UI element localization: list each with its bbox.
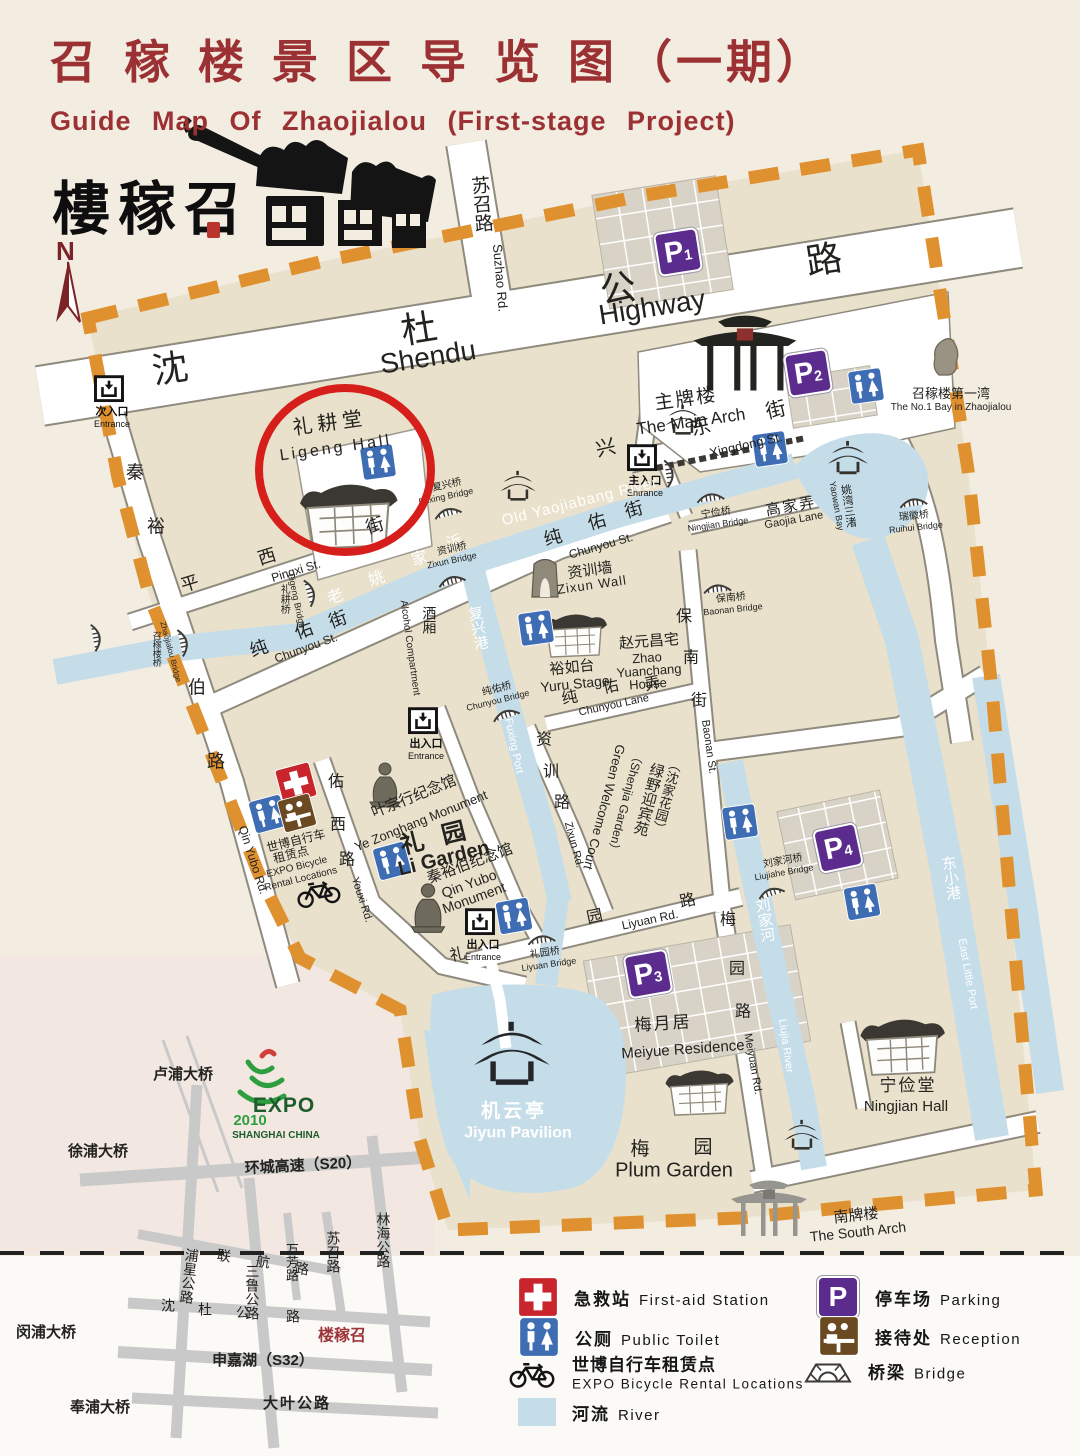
map-label: Meiyue Residence <box>621 1038 745 1062</box>
poi-label-jiyun-en: Jiyun Pavilion <box>464 1126 572 1143</box>
poi-label-no1-bay: 召稼楼第一湾 <box>912 387 990 401</box>
map-label: 梅 <box>720 913 736 930</box>
map-label: 南 <box>683 651 699 668</box>
map-label: 姚 <box>367 570 387 591</box>
bridge-icon <box>662 457 681 489</box>
map-label: 伯 <box>188 679 206 698</box>
map-label: Baonan St. <box>698 719 717 775</box>
map-label: 街 <box>623 498 646 521</box>
toilet-icon <box>721 803 759 841</box>
map-label: 裕 <box>147 518 165 537</box>
bridge-label: 礼耕桥 <box>278 584 289 614</box>
map-label: 纯 <box>247 637 270 661</box>
expo-logo-text: 2010 <box>233 1113 266 1129</box>
bridge-label: Baonan Bridge <box>703 602 763 618</box>
entrance-label: 出入口 <box>465 936 501 952</box>
entrance-icon: 次入口Entrance <box>94 375 130 429</box>
bridge-label: Ningjian Bridge <box>687 516 749 534</box>
inset-label: 公 <box>236 1306 250 1321</box>
map-label: 资 <box>536 733 552 750</box>
entrance-label: 出入口 <box>408 735 444 751</box>
bridge-icon <box>176 626 197 658</box>
map-label: 园 <box>693 1138 712 1158</box>
river-label: Liujia River <box>775 1018 794 1073</box>
bridge-icon <box>302 576 324 609</box>
map-label: 西 <box>330 818 346 835</box>
legend-item-parking: P停车场Parking <box>817 1276 1001 1318</box>
entrance-label: 次入口 <box>94 403 130 419</box>
parking-legend-icon: P <box>817 1276 859 1318</box>
bridge-icon <box>435 567 468 589</box>
map-label: 西 <box>256 545 279 568</box>
inset-label: 浦星公路 <box>178 1247 199 1304</box>
parking-icon-p4: P4 <box>812 822 864 874</box>
inset-label: 杜 <box>198 1303 212 1318</box>
inset-label: 闵浦大桥 <box>16 1325 76 1341</box>
toilet-legend-icon <box>519 1317 559 1357</box>
map-label: 训 <box>543 765 559 782</box>
map-label: 酒厢 <box>422 606 437 634</box>
river-legend-icon <box>518 1398 556 1426</box>
map-label: 路 <box>678 892 697 912</box>
toilet-icon <box>842 882 881 921</box>
map-label: The South Arch <box>809 1220 907 1245</box>
inset-label: 环城高速（S20） <box>244 1155 361 1177</box>
inset-label: 苏召路 <box>326 1231 341 1273</box>
map-label: Liyuan Rd. <box>621 908 680 932</box>
map-label: Shendu <box>378 335 478 379</box>
map-label: 老 <box>326 588 346 609</box>
map-label: Plum Garden <box>615 1161 733 1182</box>
map-label: 秦 <box>126 464 144 483</box>
inset-label: 路 <box>294 1261 310 1277</box>
map-label: 园 <box>585 908 604 928</box>
entrance-icon: 出入口Entrance <box>408 707 444 761</box>
parking-icon-p3: P3 <box>623 949 674 1000</box>
bridge-icon <box>694 485 726 504</box>
map-label: 路 <box>207 753 225 772</box>
map-label: 保 <box>676 610 692 627</box>
bridge-label: Zixun Bridge <box>426 551 477 571</box>
map-label: 梅月居 <box>634 1013 692 1035</box>
inset-zhaojialou-logo-text: 楼稼召 <box>318 1329 366 1346</box>
parking-icon-p1: P1 <box>653 227 703 277</box>
entrance-label-en: Entrance <box>94 419 130 429</box>
street-label-suzhao-en: Suzhao Rd. <box>490 244 510 313</box>
map-label: Ningjian Hall <box>864 1099 948 1115</box>
poi-label-jiyun: 机云亭 <box>481 1102 547 1122</box>
inset-label: 徐浦大桥 <box>68 1144 128 1160</box>
toilet-icon <box>847 367 885 405</box>
map-label: Zixun Wall <box>556 573 627 596</box>
inset-label: 卢浦大桥 <box>153 1067 213 1083</box>
pavilion-icon <box>498 469 537 505</box>
guide-map-page: 召稼楼景区导览图（一期） Guide Map Of Zhaojialou (Fi… <box>0 0 1080 1456</box>
river-label: 复兴港 <box>465 604 488 651</box>
highlight-circle-ligeng-hall <box>255 384 435 556</box>
reception-legend-icon <box>819 1316 859 1356</box>
pavilion-dark-icon <box>471 1018 554 1094</box>
entrance-icon: 出入口Entrance <box>465 908 501 962</box>
map-label: 宁俭堂 <box>880 1077 937 1095</box>
legend-item-river: 河流River <box>518 1398 661 1426</box>
bridge-label: 召稼楼桥 <box>151 631 160 667</box>
inset-label: 申嘉湖（S32） <box>212 1353 314 1369</box>
map-label: Youxi Rd. <box>348 876 373 924</box>
poi-label-no1-bay-en: The No.1 Bay in Zhaojialou <box>891 403 1012 414</box>
map-label: 梅 <box>630 1140 649 1160</box>
pavilion-icon <box>782 1118 821 1154</box>
bridgeL-legend-icon <box>804 1359 852 1383</box>
map-label: 佑 <box>328 775 344 792</box>
bridge-icon <box>89 621 109 653</box>
hall-icon <box>661 1063 737 1120</box>
stone-icon <box>930 335 960 377</box>
map-label: 兴 <box>594 437 618 462</box>
inset-label: 林海公路 <box>376 1212 391 1268</box>
parking-icon-p2: P2 <box>783 348 833 398</box>
map-label: 路 <box>339 853 355 870</box>
map-label: 佑 <box>586 510 609 533</box>
bridge-label: Liyuan Bridge <box>521 956 577 973</box>
map-label: 路 <box>803 239 844 282</box>
map-label: 路 <box>554 796 570 813</box>
inset-label: 大叶公路 <box>263 1396 331 1412</box>
map-overlay: P1P2P3P4次入口Entrance主入口Entrance出入口Entranc… <box>0 0 1080 1456</box>
inset-label: 沈 <box>161 1299 175 1314</box>
map-label: 纯 <box>542 526 565 549</box>
toilet-icon <box>517 609 555 647</box>
map-label: Chunyou Lane <box>578 693 650 719</box>
inset-label: 航 <box>255 1254 271 1270</box>
pavilion-icon <box>826 439 870 479</box>
reception-icon <box>276 792 318 834</box>
hall-icon <box>855 1010 949 1080</box>
firstaid-legend-icon <box>518 1277 558 1317</box>
legend-item-reception: 接待处Reception <box>819 1316 1021 1356</box>
map-label: Alcohol Compartment <box>397 600 421 697</box>
map-label: Chunyou St. <box>568 531 635 561</box>
map-label: 礼 <box>448 946 467 966</box>
entrance-label-en: Entrance <box>465 952 501 962</box>
legend-item-firstaid: 急救站First-aid Station <box>518 1277 770 1317</box>
map-label: 平 <box>179 572 202 595</box>
map-label: 园 <box>729 962 745 979</box>
legend-item-toilet: 公厕Public Toilet <box>519 1317 720 1357</box>
street-label-suzhao: 苏召路 <box>468 175 493 234</box>
entrance-label-en: Entrance <box>408 751 444 761</box>
legend-item-bridgeL: 桥梁Bridge <box>804 1359 966 1384</box>
map-label: 路 <box>735 1005 751 1022</box>
river-label: Fuxing Port <box>502 717 525 774</box>
river-label: East Little Port <box>955 938 979 1010</box>
inset-label: 奉浦大桥 <box>70 1400 130 1416</box>
bridge-label: Ruihui Bridge <box>889 520 944 535</box>
inset-label: 联 <box>216 1248 232 1264</box>
map-label: House <box>629 676 667 692</box>
legend-item-bicycle: 世博自行车租赁点EXPO Bicycle Rental Locations <box>508 1355 804 1394</box>
map-label: 街 <box>691 694 707 711</box>
inset-label: 路 <box>286 1310 300 1325</box>
map-label: 沈 <box>149 348 190 391</box>
bicycle-legend-icon <box>508 1359 556 1389</box>
river-label: 刘家河 <box>753 897 776 944</box>
expo-logo-text: SHANGHAI CHINA <box>232 1131 320 1142</box>
map-label: 街 <box>326 608 349 632</box>
arch-gray-icon <box>721 1173 817 1239</box>
bridge-icon <box>897 490 929 509</box>
map-label: 街 <box>764 399 788 424</box>
river-label: 东小港 <box>939 855 961 902</box>
